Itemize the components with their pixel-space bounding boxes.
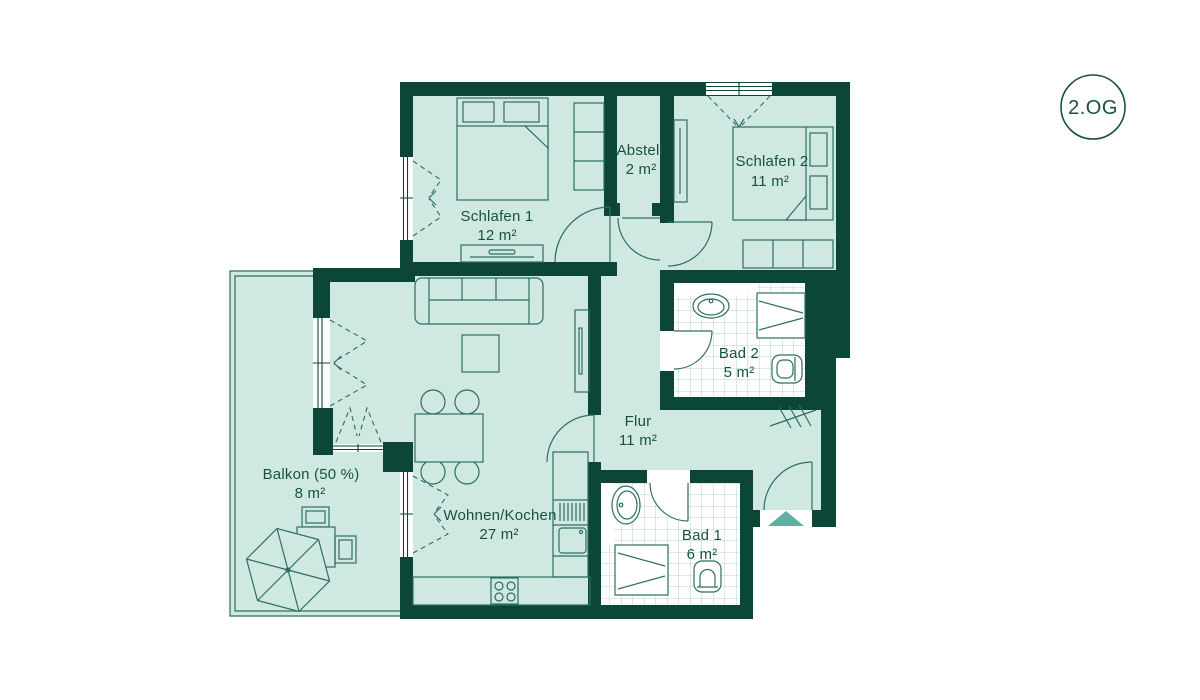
flur-area: 11 m² <box>619 432 657 449</box>
abstell-area: 2 m² <box>626 161 657 178</box>
bad2-label: Bad 2 <box>719 345 759 362</box>
bad2-washbasin <box>693 294 729 318</box>
schlafen1-label: Schlafen 1 <box>461 208 534 225</box>
bad1-door-opening <box>647 470 690 483</box>
floor-badge: 2.OG <box>1061 75 1125 139</box>
bad1-label: Bad 1 <box>682 527 722 544</box>
floor-plan-page: Schlafen 1 12 m² Abstell. 2 m² Schlafen … <box>0 0 1200 700</box>
bad1-shower <box>615 545 668 595</box>
bad2-toilet <box>772 355 802 383</box>
bad1-area: 6 m² <box>687 546 718 563</box>
floor-plan: Schlafen 1 12 m² Abstell. 2 m² Schlafen … <box>0 0 1200 700</box>
balkon-label: Balkon (50 %) <box>263 466 360 483</box>
bad2-area: 5 m² <box>724 364 755 381</box>
floor-badge-text: 2.OG <box>1068 97 1118 119</box>
bad1-counter-strip <box>601 483 614 545</box>
bad2-shower <box>757 293 805 338</box>
abstell-label: Abstell. <box>617 142 668 159</box>
bad1-washbasin <box>612 486 640 524</box>
wohnen-kochen-label: Wohnen/Kochen <box>443 507 556 524</box>
balkon-area: 8 m² <box>295 485 326 502</box>
flur-label: Flur <box>625 413 652 430</box>
stove <box>491 578 518 604</box>
bad1-toilet <box>694 561 721 592</box>
bad2-door-opening <box>660 331 674 371</box>
kitchen-drainboard <box>560 503 584 521</box>
wohnen-kochen-area: 27 m² <box>479 526 518 543</box>
schlafen2-area: 11 m² <box>751 173 789 190</box>
schlafen1-area: 12 m² <box>477 227 516 244</box>
bad2-counter-strip <box>674 283 757 295</box>
schlafen2-label: Schlafen 2 <box>736 153 809 170</box>
dining-table <box>415 414 483 462</box>
